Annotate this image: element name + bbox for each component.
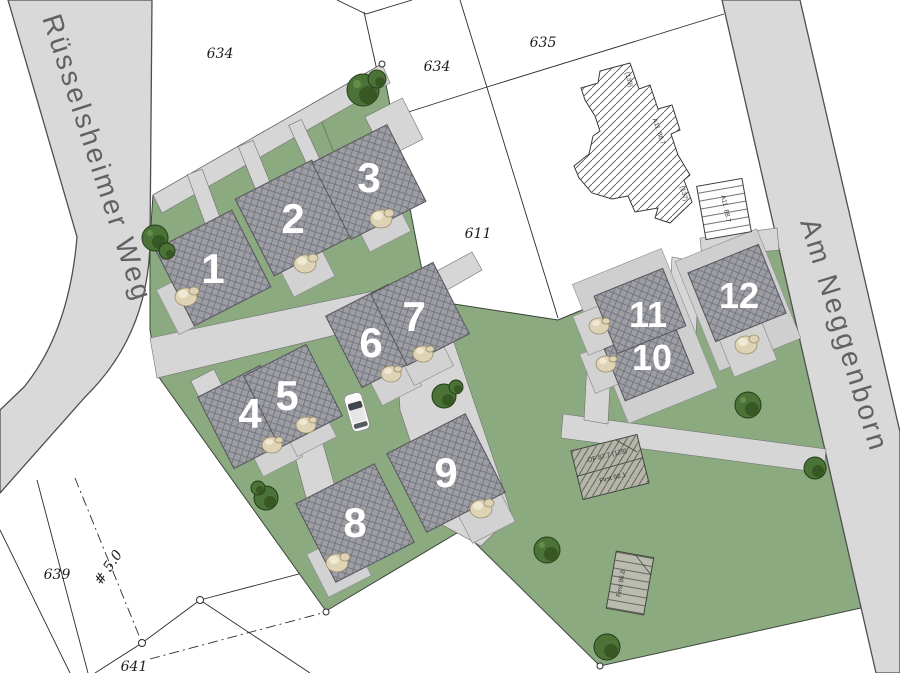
parcel-label-641: 641 (121, 659, 148, 673)
survey-marker (379, 61, 385, 67)
plot-number-2: 2 (281, 195, 304, 242)
survey-marker (323, 609, 329, 615)
survey-marker (139, 640, 146, 647)
tree-icon (534, 537, 560, 563)
plot-number-6: 6 (359, 319, 382, 366)
parcel-label-634: 634 (424, 59, 451, 75)
tree-icon (804, 457, 826, 479)
tree-icon (449, 380, 463, 394)
site-plan-stage: 1 2 3 4 5 6 7 8 9 10 11 12 (139) A11. 88… (0, 0, 900, 673)
plot-number-1: 1 (201, 245, 224, 292)
tree-icon (251, 481, 265, 495)
plot-number-4: 4 (238, 390, 262, 437)
parcel-label-639: 639 (44, 567, 71, 583)
tree-icon (159, 243, 175, 259)
plot-number-9: 9 (434, 449, 457, 496)
tree-icon (368, 70, 386, 88)
garage-building: A11. 88.7 (697, 178, 752, 239)
survey-marker (197, 597, 204, 604)
plot-number-7: 7 (402, 293, 425, 340)
tree-icon (735, 392, 761, 418)
plot-number-8: 8 (343, 499, 366, 546)
plot-number-5: 5 (275, 372, 298, 419)
plot-number-12: 12 (719, 275, 759, 316)
tree-icon (594, 634, 620, 660)
parcel-label-634-nw: 634 (207, 46, 234, 62)
parcel-label-611: 611 (465, 226, 492, 242)
site-plan-map: 1 2 3 4 5 6 7 8 9 10 11 12 (139) A11. 88… (0, 0, 900, 673)
parcel-label-635: 635 (530, 35, 557, 51)
plot-number-3: 3 (357, 154, 380, 201)
plot-number-10: 10 (632, 337, 672, 378)
survey-marker (597, 663, 603, 669)
plot-number-11: 11 (629, 294, 667, 335)
